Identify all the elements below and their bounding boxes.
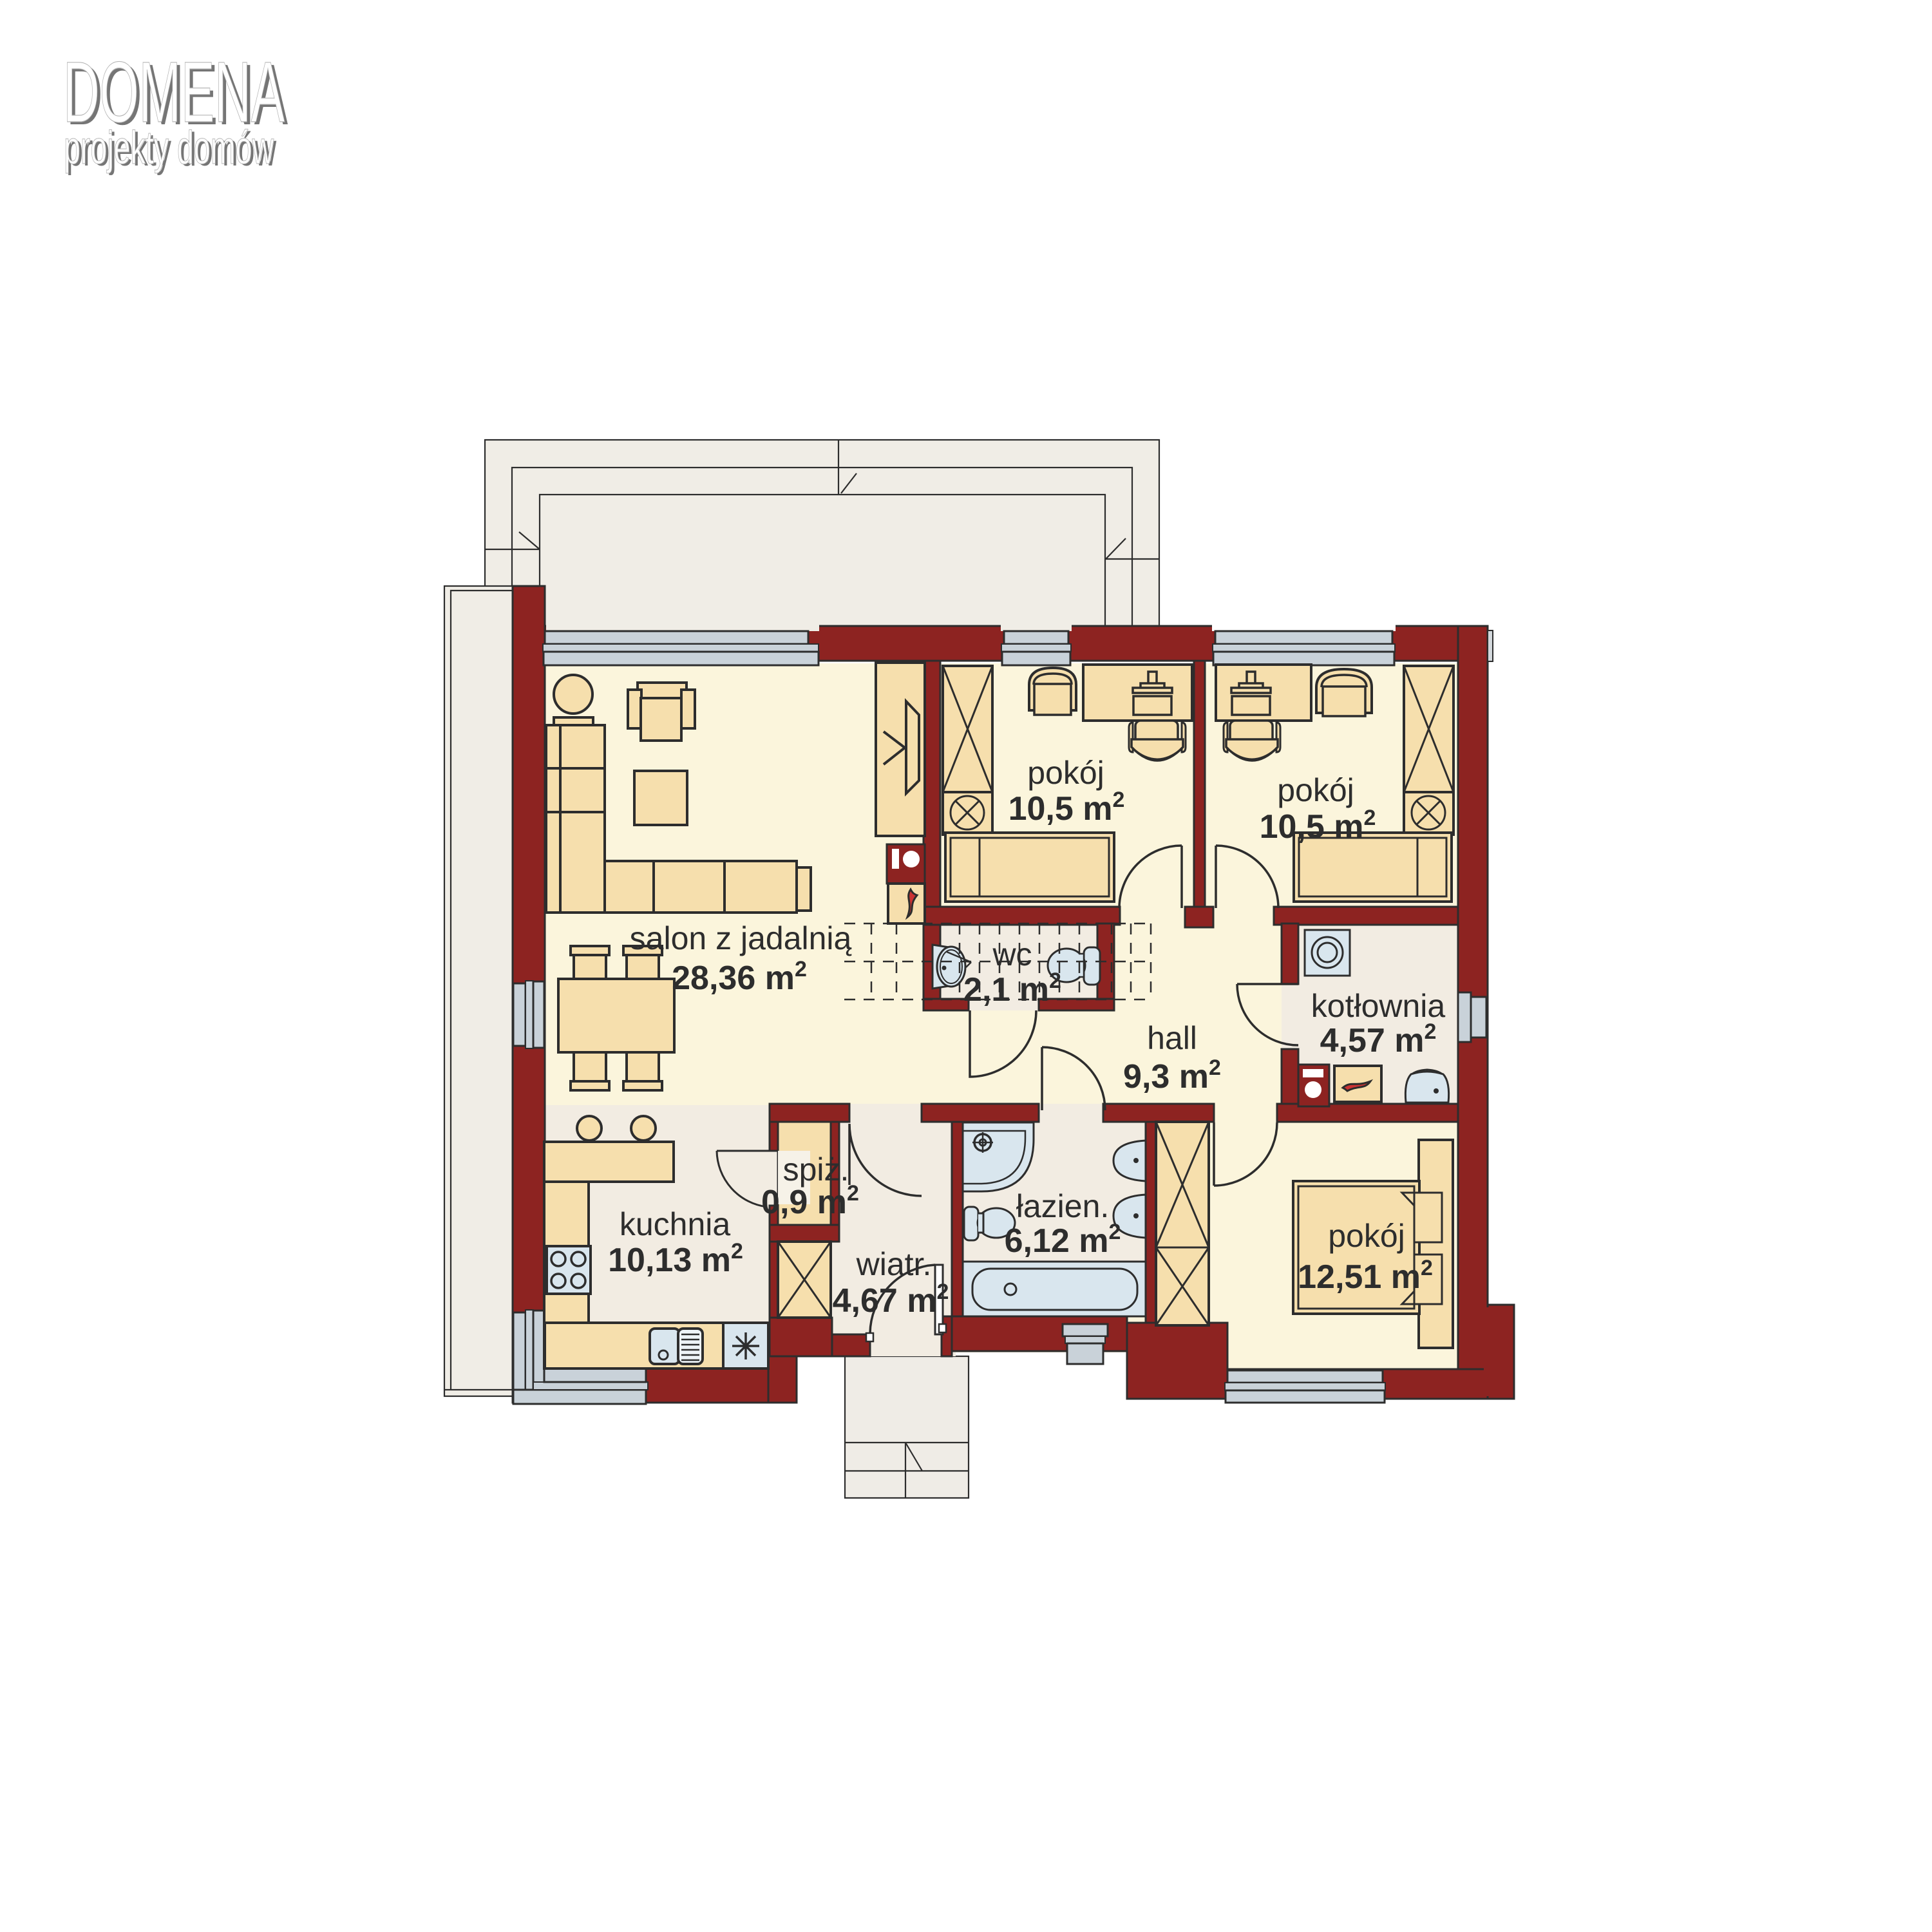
svg-text:2,1 m2: 2,1 m2: [963, 969, 1061, 1009]
svg-text:10,13 m2: 10,13 m2: [608, 1239, 743, 1279]
svg-text:9,3 m2: 9,3 m2: [1123, 1056, 1221, 1095]
svg-text:pokój: pokój: [1027, 755, 1104, 791]
svg-text:projekty domów: projekty domów: [64, 122, 274, 174]
svg-text:12,51 m2: 12,51 m2: [1298, 1256, 1433, 1296]
svg-text:pokój: pokój: [1328, 1218, 1405, 1254]
svg-text:0,9 m2: 0,9 m2: [761, 1181, 859, 1221]
svg-text:28,36 m2: 28,36 m2: [672, 957, 807, 997]
svg-text:4,67 m2: 4,67 m2: [833, 1280, 949, 1320]
svg-text:10,5 m2: 10,5 m2: [1260, 806, 1376, 846]
svg-text:wc: wc: [992, 936, 1032, 972]
svg-text:pokój: pokój: [1277, 772, 1354, 808]
svg-text:salon z jadalnią: salon z jadalnią: [630, 920, 852, 956]
svg-text:kotłownia: kotłownia: [1311, 988, 1446, 1024]
svg-text:6,12 m2: 6,12 m2: [1005, 1220, 1121, 1260]
svg-text:spiż.: spiż.: [783, 1151, 849, 1188]
svg-text:kuchnia: kuchnia: [620, 1206, 731, 1242]
svg-text:4,57 m2: 4,57 m2: [1320, 1019, 1437, 1059]
svg-text:łazien.: łazien.: [1016, 1188, 1110, 1224]
svg-text:wiatr.: wiatr.: [856, 1246, 932, 1282]
svg-text:hall: hall: [1147, 1020, 1197, 1056]
svg-text:10,5 m2: 10,5 m2: [1009, 788, 1125, 828]
